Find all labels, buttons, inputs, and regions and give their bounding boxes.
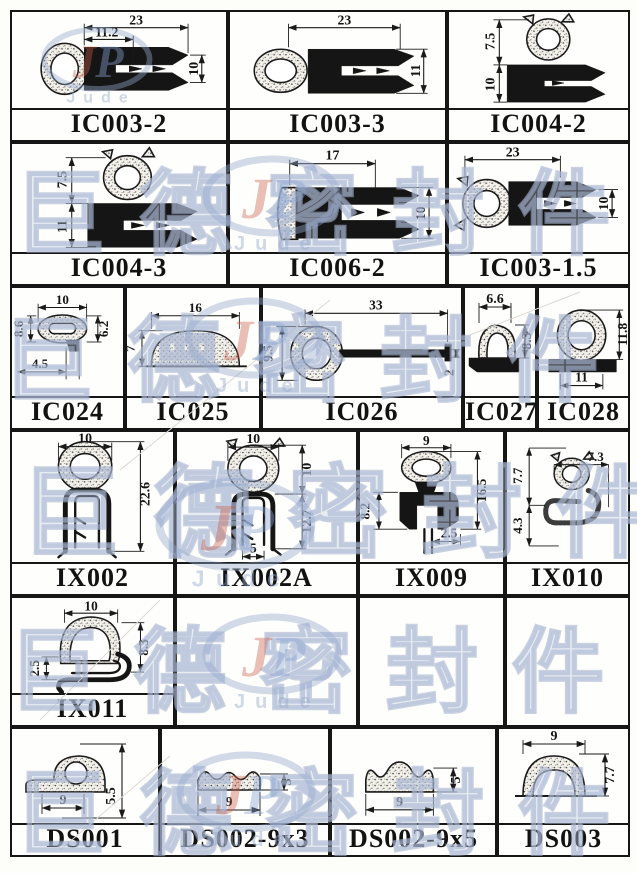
profile-cell-ds001: 9 5.5 DS001 <box>10 727 160 857</box>
empty-cell <box>358 596 505 727</box>
dim-label: 23 <box>506 146 520 161</box>
dim-label: 8.2 <box>360 503 372 520</box>
dim-label: 5.5 <box>104 787 119 805</box>
dim-label: 7.5 <box>482 33 497 50</box>
dim-label: 8.3 <box>136 639 151 656</box>
dim-label: 10 <box>299 463 314 477</box>
profile-cell-ic004-2: 7.5 10 IC004-2 <box>447 10 630 142</box>
profile-cell-ic026: 33 9.5 2 IC026 <box>261 286 463 430</box>
dim-label: 11 <box>575 370 588 385</box>
dim-label: 8.6 <box>12 320 26 337</box>
seal-profile <box>366 762 434 792</box>
part-number-label: IC027 <box>465 396 535 428</box>
profile-cell-ic003-3: 23 11 IC003-3 <box>228 10 447 142</box>
profile-cell-ds003: 9 7.7 DS003 <box>497 727 630 857</box>
seal-profile <box>198 772 260 790</box>
seal-profile <box>65 490 108 551</box>
dim-label: 10 <box>414 206 429 220</box>
dim-label: 10 <box>56 292 70 307</box>
dim-label: 11.8 <box>615 323 628 346</box>
profile-cell-ic004-3: 7.5 11 IC004-3 <box>10 142 228 286</box>
part-number-label: IC028 <box>539 396 628 428</box>
part-number-label: IX010 <box>507 562 628 594</box>
dim-label: 11.2 <box>95 24 118 39</box>
dim-label: 10 <box>597 196 612 210</box>
profile-cell-ic024: 10 8.6 6.2 4.5 IC024 <box>10 286 125 430</box>
seal-profile-drawing: 7.5 10 <box>449 12 628 108</box>
dim-label: 8.3 <box>520 332 535 350</box>
dim-label: 10 <box>78 432 92 446</box>
profile-cell-ix011: 10 8.3 2.5 IX011 <box>10 596 175 727</box>
empty-cell <box>175 596 358 727</box>
dim-label: 3 <box>280 779 295 786</box>
seal-profile <box>469 358 519 372</box>
profile-cell-ic003-2: 23 11.2 10 IC003-2 <box>10 10 228 142</box>
part-number-label: IX011 <box>12 693 173 725</box>
dim-label: 7.5 <box>56 171 71 188</box>
seal-profile-drawing: 23 10 <box>449 144 628 252</box>
dim-label: 7 <box>127 345 137 352</box>
dim-label: 16 <box>189 300 203 315</box>
part-number-label: IC024 <box>12 396 123 428</box>
seal-profile-drawing: 10 10 12.7 5 <box>177 432 356 562</box>
profile-cell-ds002-9x5: 9 5 DS002-9x5 <box>330 727 497 857</box>
dim-label: 12.7 <box>299 509 314 533</box>
dim-label: 11 <box>408 64 423 77</box>
part-number-label: DS002-9x3 <box>162 823 328 855</box>
dim-label: 9 <box>226 795 233 810</box>
dim-label: 2.5 <box>27 660 42 677</box>
part-number-label: DS001 <box>12 823 158 855</box>
seal-profile-drawing: 9 3 <box>162 729 328 823</box>
dim-label: 5 <box>250 541 257 556</box>
part-number-label: IC003-3 <box>230 108 445 140</box>
seal-profile-drawing: 6.6 8.3 <box>465 288 535 396</box>
dim-label: 10 <box>186 62 201 76</box>
seal-profile-drawing: 10 22.6 <box>12 432 173 562</box>
dim-label: 10 <box>482 77 497 91</box>
seal-profile-drawing: 17 10 <box>230 144 445 252</box>
part-number-label: DS003 <box>499 823 628 855</box>
dim-label: 23 <box>338 13 352 28</box>
profile-cell-ix010: 7.3 7.7 4.3 IX010 <box>505 430 630 596</box>
dim-label: 9 <box>396 795 403 810</box>
empty-cell <box>505 596 630 727</box>
dim-label: 6.6 <box>486 292 504 307</box>
dim-label: 9.5 <box>263 345 276 362</box>
part-number-label: IX002 <box>12 562 173 594</box>
profile-cell-ix002: 10 22.6 IX002 <box>10 430 175 596</box>
seal-profile-drawing: 16 7 <box>127 288 259 396</box>
profile-cell-ix002a: 10 10 12.7 5 IX002A <box>175 430 358 596</box>
part-number-label: DS002-9x5 <box>332 823 495 855</box>
profile-cell-ic028: 11.8 11 IC028 <box>537 286 630 430</box>
profile-cell-ic025: 16 7 IC025 <box>125 286 261 430</box>
part-number-label: IC025 <box>127 396 259 428</box>
dim-label: 7.7 <box>510 467 525 484</box>
seal-profile <box>546 491 599 523</box>
dim-label: 7.3 <box>588 449 605 464</box>
dim-label: 4.3 <box>510 517 525 534</box>
seal-profile-drawing: 23 11.2 10 <box>12 12 226 108</box>
dim-label: 10 <box>246 432 260 446</box>
seal-profile <box>340 350 447 358</box>
profile-cell-ix009: 9 8.2 16.5 2.5 IX009 <box>358 430 505 596</box>
part-number-label: IC026 <box>263 396 461 428</box>
seal-profile-drawing: 9 8.2 16.5 2.5 <box>360 432 503 562</box>
part-number-label: IC006-2 <box>230 252 445 284</box>
dim-label: 9 <box>423 433 430 448</box>
dim-label: 5 <box>449 776 464 783</box>
seal-profile-drawing: 7.3 7.7 4.3 <box>507 432 628 562</box>
seal-profile-drawing: 33 9.5 2 <box>263 288 461 396</box>
dim-label: 33 <box>369 297 383 312</box>
dim-label: 11 <box>56 220 71 233</box>
part-number-label: IC004-3 <box>12 252 226 284</box>
seal-profile <box>400 492 459 529</box>
seal-profile-drawing: 9 5 <box>332 729 495 823</box>
dim-label: 17 <box>326 149 340 164</box>
dim-label: 23 <box>129 13 143 28</box>
seal-profile-drawing: 9 7.7 <box>499 729 628 823</box>
seal-profile <box>66 340 79 351</box>
dim-label: 6.2 <box>96 321 111 337</box>
profile-cell-ic003-1-5: 23 10 IC003-1.5 <box>447 142 630 286</box>
dim-label: 9 <box>551 729 558 744</box>
profile-cell-ds002-9x3: 9 3 DS002-9x3 <box>160 727 330 857</box>
dim-label: 4.5 <box>32 356 49 371</box>
part-number-label: IC003-1.5 <box>449 252 628 284</box>
part-number-label: IX009 <box>360 562 503 594</box>
catalog-page: 23 11.2 10 IC003-2 23 11 IC003-3 7.5 10 … <box>0 0 637 873</box>
seal-profile-drawing: 7.5 11 <box>12 144 226 252</box>
part-number-label: IX002A <box>177 562 356 594</box>
dim-label: 22.6 <box>137 482 152 506</box>
seal-profile <box>151 331 239 367</box>
dim-label: 7.7 <box>603 766 618 784</box>
part-number-label: IC003-2 <box>12 108 226 140</box>
profile-cell-ic027: 6.6 8.3 IC027 <box>463 286 537 430</box>
seal-profile-drawing: 11.8 11 <box>539 288 628 396</box>
seal-profile-drawing: 23 11 <box>230 12 445 108</box>
dim-label: 2.5 <box>441 526 458 541</box>
dim-label: 10 <box>84 598 98 613</box>
dim-label: 9 <box>60 793 67 808</box>
part-number-label: IC004-2 <box>449 108 628 140</box>
dim-label: 16.5 <box>474 478 489 502</box>
dim-label: 2 <box>441 369 456 376</box>
seal-profile-drawing: 10 8.3 2.5 <box>12 598 173 693</box>
profile-cell-ic006-2: 17 10 IC006-2 <box>228 142 447 286</box>
seal-profile-drawing: 9 5.5 <box>12 729 158 823</box>
seal-profile-drawing: 10 8.6 6.2 4.5 <box>12 288 123 396</box>
